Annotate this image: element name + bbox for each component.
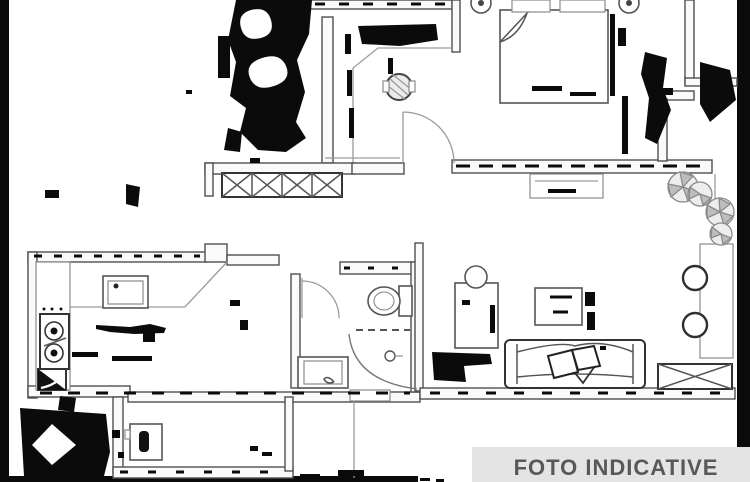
living-left-wall (415, 243, 423, 391)
deco-circle-2 (683, 313, 707, 337)
sofa-pillow-2 (572, 346, 600, 370)
kitchen (36, 262, 227, 390)
banner: FOTO INDICATIVE (472, 447, 750, 482)
blob-kitchen (96, 324, 166, 334)
toilet (368, 287, 400, 315)
shower-curve (349, 334, 417, 389)
bathroom (298, 286, 417, 401)
terrace-table (700, 244, 733, 358)
terrace-plants (668, 172, 734, 245)
floor-plan-svg: FOTO INDICATIVE (0, 0, 750, 482)
blob-living (432, 352, 492, 382)
shower-drain (385, 351, 395, 361)
sofa (505, 340, 645, 388)
hall-top-wall (310, 0, 452, 9)
hall-left-wall (322, 17, 333, 163)
x-doormat (658, 364, 732, 389)
entry-right-wall (285, 397, 293, 471)
pillow-right (560, 0, 605, 12)
walls (28, 0, 737, 478)
bath-top-wall (340, 262, 420, 274)
blob-bottom-left (20, 408, 110, 476)
bath-door-arc (302, 278, 339, 318)
left-edge-bar (0, 0, 9, 482)
scan-artifacts (20, 0, 736, 479)
terrace (668, 172, 734, 358)
pillow-left (512, 0, 550, 12)
hall-bedroom-wall (452, 0, 460, 52)
blob-top-center (228, 0, 312, 152)
hall-door-arc (403, 112, 454, 163)
window-box (530, 174, 603, 198)
deco-circle-1 (683, 266, 707, 290)
toilet-tank (399, 286, 412, 316)
banner-label: FOTO INDICATIVE (514, 455, 719, 480)
right-edge-bar (737, 0, 750, 449)
bedroom-right-wall (685, 0, 694, 84)
coffee-table (535, 288, 582, 325)
entry-room (125, 424, 162, 460)
desk-stool (465, 266, 487, 288)
floor-plan-image: FOTO INDICATIVE (0, 0, 750, 482)
blob-hall-band (358, 24, 438, 46)
